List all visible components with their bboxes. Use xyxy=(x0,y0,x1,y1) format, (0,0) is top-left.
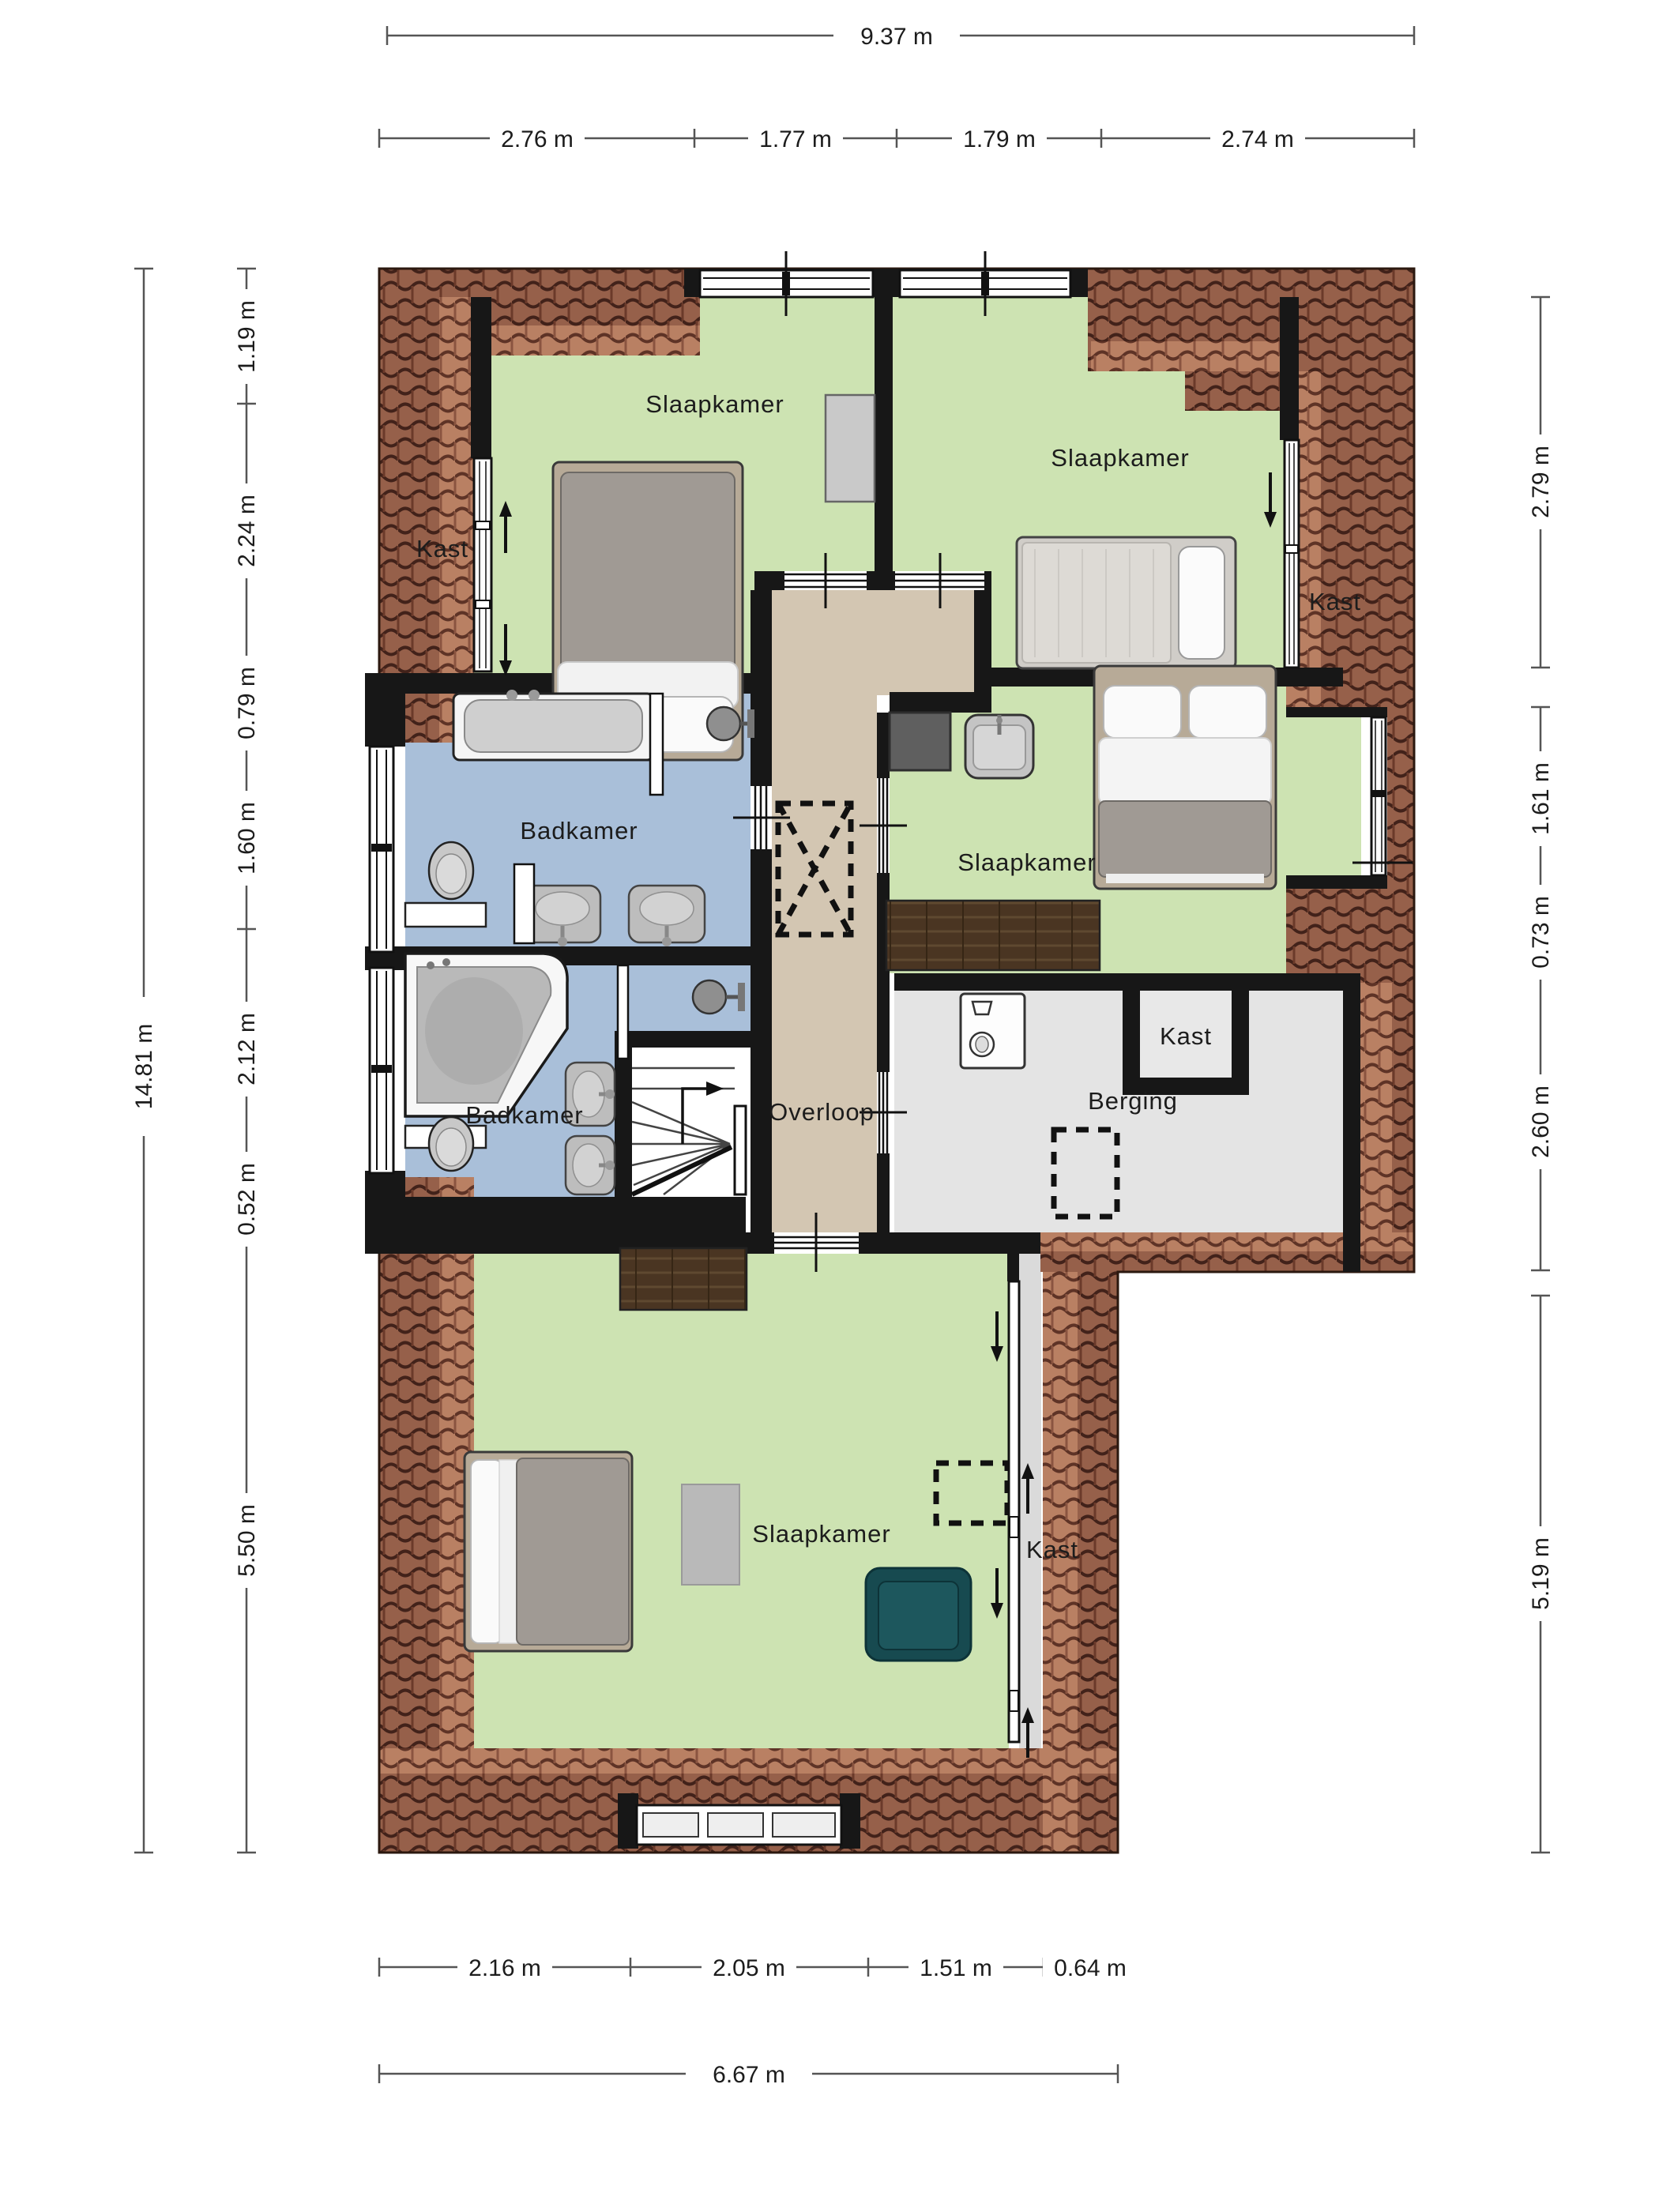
label-badkamer-second: Badkamer xyxy=(465,1101,583,1129)
armchair-bottom xyxy=(866,1568,971,1661)
dim-bottom-seg-2: 2.05 m xyxy=(713,1955,785,1981)
dim-right-seg-4: 2.60 m xyxy=(1528,1085,1554,1158)
window-bedroom-bottom xyxy=(637,1805,841,1845)
washbasin-main-2 xyxy=(629,886,705,946)
washbasin-second-2 xyxy=(566,1136,615,1194)
dim-left-seg-2: 2.24 m xyxy=(234,495,260,567)
label-slaapkamer-middle: Slaapkamer xyxy=(957,848,1096,876)
bedroom-middle-window-bay xyxy=(1286,717,1361,875)
dim-bottom-seg-3: 1.51 m xyxy=(920,1955,992,1981)
dim-left-seg-4: 1.60 m xyxy=(234,802,260,875)
shower-cabinet-middle xyxy=(890,713,950,770)
dim-left-seg-7: 5.50 m xyxy=(234,1504,260,1577)
dim-bottom-seg-1: 2.16 m xyxy=(468,1955,541,1981)
dim-left-seg-6: 0.52 m xyxy=(234,1163,260,1236)
sink-bedroom-middle xyxy=(965,715,1033,778)
dresser-bottom xyxy=(620,1248,747,1310)
washing-machine xyxy=(961,994,1025,1068)
dim-left-seg-3: 0.79 m xyxy=(234,667,260,739)
floor-plan-canvas: Slaapkamer Slaapkamer Kast Kast Badkamer… xyxy=(0,0,1659,2212)
dim-left-overall: 14.81 m xyxy=(131,1024,157,1109)
dim-top-seg-2: 1.77 m xyxy=(759,126,832,152)
dresser-middle xyxy=(886,901,1100,970)
bed-middle xyxy=(1094,666,1276,889)
dim-top-seg-4: 2.74 m xyxy=(1221,126,1294,152)
kast-door-topleft xyxy=(474,458,491,671)
dim-bottom-seg-4: 0.64 m xyxy=(1054,1955,1127,1981)
label-overloop: Overloop xyxy=(769,1098,875,1126)
dim-top-seg-3: 1.79 m xyxy=(963,126,1036,152)
label-slaapkamer-bottom: Slaapkamer xyxy=(752,1520,890,1548)
overloop-floor-upper xyxy=(772,590,974,695)
dim-right-seg-2: 1.61 m xyxy=(1528,762,1554,835)
label-slaapkamer-topleft: Slaapkamer xyxy=(645,390,784,418)
dim-bottom-overall: 6.67 m xyxy=(713,2062,785,2088)
dim-top-seg-1: 2.76 m xyxy=(501,126,574,152)
kast-door-topright xyxy=(1285,440,1299,668)
bed-bottom xyxy=(465,1452,632,1651)
kast-bottom-floor xyxy=(1019,1254,1041,1748)
label-slaapkamer-topright: Slaapkamer xyxy=(1051,444,1189,472)
dim-right-seg-5: 5.19 m xyxy=(1528,1537,1554,1610)
dim-top-overall: 9.37 m xyxy=(860,24,933,50)
label-kast-topright: Kast xyxy=(1309,588,1361,615)
label-kast-bottom: Kast xyxy=(1026,1536,1078,1563)
dim-left-seg-5: 2.12 m xyxy=(234,1013,260,1085)
dim-right-seg-1: 2.79 m xyxy=(1528,446,1554,518)
floor-plan-page: Slaapkamer Slaapkamer Kast Kast Badkamer… xyxy=(0,0,1659,2212)
window-bathroom-left-1 xyxy=(370,747,393,952)
bed-topright xyxy=(1017,537,1236,668)
washbasin-main-1 xyxy=(525,886,600,946)
dresser-topleft xyxy=(826,395,875,502)
overloop-floor xyxy=(772,695,877,1232)
window-bathroom-left-2 xyxy=(370,968,393,1173)
bathtub-main xyxy=(453,690,653,760)
stairs-door-panel xyxy=(735,1106,746,1194)
rug-bottom xyxy=(682,1484,739,1585)
label-kast-berging: Kast xyxy=(1160,1022,1212,1050)
label-kast-topleft: Kast xyxy=(416,535,468,562)
dim-right-seg-3: 0.73 m xyxy=(1528,896,1554,969)
label-badkamer-main: Badkamer xyxy=(520,817,638,845)
label-berging: Berging xyxy=(1088,1087,1178,1115)
kast-door-bottom xyxy=(1009,1281,1019,1742)
dim-left-seg-1: 1.19 m xyxy=(234,300,260,373)
bathroom-partition xyxy=(514,864,534,943)
